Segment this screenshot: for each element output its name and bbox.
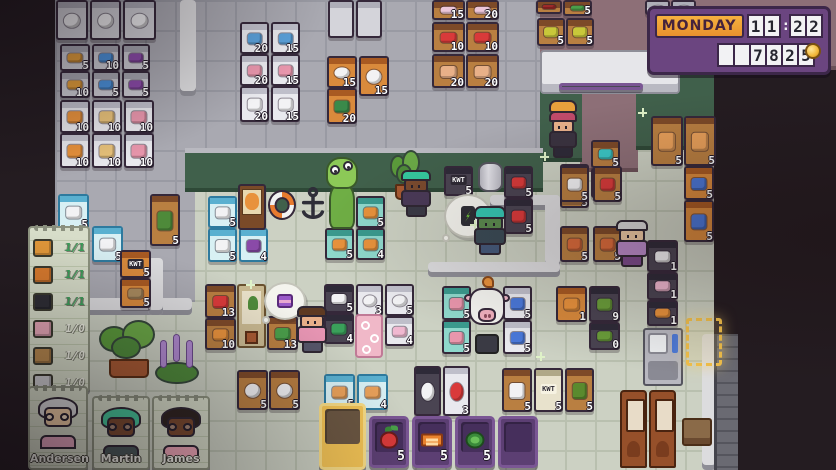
paper-shelf[interactable]: 5 bbox=[385, 284, 414, 316]
plant-stand-header bbox=[152, 196, 178, 202]
orange-shelf-paper[interactable]: 15 bbox=[327, 56, 357, 88]
shelf-redmeat-icon bbox=[543, 5, 556, 9]
lavender-plant-flower bbox=[186, 340, 193, 368]
greens-stand[interactable]: 0 bbox=[589, 322, 620, 350]
bandage-shelf-header bbox=[387, 318, 412, 324]
fish-shelf-stock-count: 4 bbox=[377, 248, 384, 261]
bun-stand[interactable]: 1 bbox=[647, 300, 678, 326]
steel-door-header bbox=[358, 2, 380, 8]
hotbar-slot-2[interactable]: 5 bbox=[369, 416, 409, 468]
fish-freezer[interactable]: 5 bbox=[208, 196, 237, 228]
bread-case-header bbox=[326, 376, 353, 382]
wall-shelf-burger-header bbox=[62, 46, 88, 52]
cake-stand[interactable]: 1 bbox=[647, 272, 678, 300]
thread-stand[interactable]: 5 bbox=[591, 140, 620, 168]
kwt-wall-shelf[interactable]: KWT5 bbox=[444, 166, 473, 196]
fish-shelf-icon bbox=[363, 207, 378, 218]
coffee-stand-icon bbox=[421, 383, 434, 401]
glasses-icon bbox=[60, 413, 69, 421]
entrance-doors[interactable] bbox=[620, 390, 676, 468]
produce-jars-header bbox=[568, 20, 592, 26]
james-portrait bbox=[159, 407, 203, 449]
kitchen-sink-basin bbox=[648, 333, 668, 354]
vending-oranges[interactable]: 10 bbox=[60, 100, 90, 133]
bun-stand-icon bbox=[655, 309, 671, 318]
egg-stand-icon bbox=[277, 384, 293, 398]
paper-shelf-header bbox=[358, 286, 381, 292]
fish-freezer-header bbox=[210, 230, 235, 236]
produce-pork-stock-count: 20 bbox=[451, 76, 464, 89]
fish-freezer-header bbox=[94, 228, 121, 234]
fridge-tower-header bbox=[686, 168, 712, 174]
orange-shelf-paper-header bbox=[361, 58, 387, 64]
time-display: 11:22 bbox=[749, 14, 823, 38]
staff-name: Martin bbox=[94, 452, 148, 465]
vending-bread-header bbox=[94, 135, 120, 141]
cola-fridge-header bbox=[506, 168, 531, 174]
pickle-stand-icon bbox=[572, 383, 587, 399]
kitchen-sink[interactable] bbox=[643, 328, 683, 386]
bread-stand-header bbox=[686, 118, 714, 124]
cola-fridge[interactable]: 5 bbox=[504, 198, 533, 234]
wall-shelf-jar-stock-count: 5 bbox=[112, 86, 119, 99]
wall-shelf-mushroom-icon bbox=[129, 80, 143, 89]
steel-door-header bbox=[330, 2, 352, 8]
fridge-water-header bbox=[273, 24, 298, 30]
wall-shelf-burger[interactable]: 5 bbox=[60, 44, 90, 71]
customer-bob[interactable] bbox=[297, 308, 327, 374]
pink-bottle-icon bbox=[33, 320, 53, 338]
portrait-shirt bbox=[40, 435, 76, 449]
bread-case-icon bbox=[365, 386, 381, 399]
fridge-milk-stock-count: 20 bbox=[255, 110, 268, 123]
yogurt-fridge-icon bbox=[510, 298, 525, 310]
life-buoy[interactable] bbox=[268, 190, 296, 220]
hud-money-row: 7825 bbox=[655, 43, 823, 67]
produce-jars[interactable]: 5 bbox=[537, 18, 565, 46]
list-item-bread-crate[interactable]: 1/1 bbox=[30, 234, 88, 261]
crate-candy-icon bbox=[600, 178, 615, 191]
staff-name: Andersen bbox=[30, 452, 86, 465]
sack-stand-icon bbox=[128, 288, 144, 298]
egg-stand-header bbox=[271, 372, 298, 378]
crate-bottles-header bbox=[562, 168, 587, 174]
paper-shelf[interactable]: 3 bbox=[356, 284, 383, 316]
fridge-water[interactable]: 15 bbox=[271, 22, 300, 54]
plant-sign-sprout bbox=[248, 296, 258, 310]
wall-shelf-jar[interactable]: 5 bbox=[92, 71, 120, 98]
produce-turnips[interactable]: 15 bbox=[432, 0, 465, 20]
med-shelf-icon bbox=[331, 324, 346, 335]
customer-zombie-beanie[interactable] bbox=[474, 206, 506, 282]
customer-grandma[interactable] bbox=[616, 222, 648, 288]
cow-mascot-body bbox=[475, 334, 499, 354]
produce-pork[interactable]: 20 bbox=[432, 54, 465, 88]
sack-stand[interactable]: 5 bbox=[120, 278, 151, 308]
crate-cans-header bbox=[562, 228, 587, 234]
wall-shelf-mushroom-header bbox=[124, 73, 148, 79]
energy-drink-progress: 1/1 bbox=[64, 295, 86, 308]
carrot-stand-stock-count: 10 bbox=[222, 338, 235, 351]
appliance[interactable] bbox=[123, 0, 156, 40]
soda-fridge-icon bbox=[450, 383, 463, 401]
fridge-meat-header bbox=[242, 56, 267, 62]
fish-freezer-header bbox=[60, 196, 87, 202]
egg-stand-stock-count: 5 bbox=[292, 398, 299, 411]
wall-shelf-burger-header bbox=[62, 73, 88, 79]
door-bench[interactable] bbox=[682, 418, 712, 446]
egg-stand[interactable]: 5 bbox=[237, 370, 268, 410]
hotbar-slot-4[interactable]: 5 bbox=[455, 416, 495, 468]
cow-mascot-head bbox=[469, 288, 505, 325]
juice-stand-icon bbox=[564, 298, 580, 311]
steel-door[interactable] bbox=[356, 0, 382, 38]
paper-shelf-header bbox=[387, 286, 412, 292]
vending-bread[interactable]: 10 bbox=[92, 133, 122, 168]
fish-shelf-icon bbox=[363, 239, 378, 250]
fish-freezer-header bbox=[210, 198, 235, 204]
juice-stand[interactable]: 1 bbox=[556, 286, 587, 322]
list-item-energy-drink[interactable]: 1/1 bbox=[30, 288, 88, 315]
vending-meat-header bbox=[126, 135, 152, 141]
produce-pork[interactable]: 20 bbox=[466, 54, 499, 88]
produce-cabbage[interactable]: 5 bbox=[563, 0, 592, 16]
greens-stand-header bbox=[591, 324, 618, 330]
greens-stand[interactable]: 9 bbox=[589, 286, 620, 322]
bread-stand[interactable]: 5 bbox=[684, 116, 716, 166]
kwt-wall-shelf-header bbox=[446, 168, 471, 174]
produce-jars[interactable]: 5 bbox=[566, 18, 594, 46]
orange-shelf-can[interactable]: 20 bbox=[327, 88, 357, 124]
glasses-icon bbox=[108, 423, 117, 431]
produce-cabbage-stock-count: 5 bbox=[584, 4, 591, 17]
fish-shelf-icon bbox=[332, 239, 347, 250]
plant-stand-icon bbox=[157, 211, 172, 230]
cabbage-item-icon bbox=[466, 431, 485, 448]
energy-drink-icon bbox=[33, 293, 53, 311]
yogurt-fridge-icon bbox=[510, 332, 525, 344]
fish-freezer[interactable]: 5 bbox=[92, 226, 123, 262]
lavender-plant[interactable] bbox=[150, 334, 204, 384]
list-item-nut-bundle[interactable]: 1/0 bbox=[30, 342, 88, 369]
fridge-meat[interactable]: 15 bbox=[271, 54, 300, 86]
staff-card-andersen[interactable]: Andersen bbox=[28, 386, 88, 470]
kwt-stand[interactable]: KWT5 bbox=[120, 250, 151, 278]
goods-icon bbox=[277, 294, 293, 308]
metal-keg[interactable] bbox=[478, 162, 503, 192]
fish-shelf[interactable]: 5 bbox=[325, 228, 354, 260]
fridge-tower[interactable]: 5 bbox=[684, 200, 714, 242]
appliance-header bbox=[125, 2, 154, 8]
carrot-stand-header bbox=[207, 320, 234, 326]
produce-jars-icon bbox=[544, 28, 558, 38]
fish-freezer[interactable]: 5 bbox=[208, 228, 237, 262]
greens-stand-header bbox=[591, 288, 618, 294]
vending-oranges[interactable]: 10 bbox=[60, 133, 90, 168]
orange-shelf-can-stock-count: 20 bbox=[343, 112, 356, 125]
cola-fridge-icon bbox=[511, 177, 526, 188]
meat-chunk-progress: 1/1 bbox=[64, 268, 86, 281]
pickle-stand[interactable]: 5 bbox=[565, 368, 594, 412]
hotbar-slot-5[interactable] bbox=[498, 416, 538, 468]
fridge-milk-header bbox=[242, 88, 267, 94]
leafy-plant-leaf bbox=[111, 336, 141, 359]
appliance[interactable] bbox=[90, 0, 121, 40]
sparkle-effect bbox=[246, 280, 255, 289]
fridge-milk-stock-count: 15 bbox=[286, 110, 299, 123]
fridge-meat[interactable]: 20 bbox=[240, 54, 269, 86]
fish-shelf[interactable]: 4 bbox=[356, 228, 385, 260]
bun-stand-header bbox=[649, 302, 676, 308]
produce-pork-header bbox=[434, 56, 463, 62]
coin-icon bbox=[805, 43, 821, 59]
staff-card-martin[interactable]: Martin bbox=[92, 396, 150, 470]
meat-fridge[interactable]: 5 bbox=[442, 286, 471, 320]
fridge-milk[interactable]: 20 bbox=[240, 86, 269, 122]
customer-zombie-beanie-legs bbox=[479, 243, 501, 255]
thread-stand-header bbox=[593, 142, 618, 148]
list-item-meat-chunk[interactable]: 1/1 bbox=[30, 261, 88, 288]
wall-shelf-mushroom[interactable]: 5 bbox=[122, 71, 150, 98]
vending-meat-stock-count: 10 bbox=[140, 156, 153, 169]
plant-stand[interactable]: 5 bbox=[150, 194, 180, 246]
list-item-pink-bottle[interactable]: 1/0 bbox=[30, 315, 88, 342]
bread-crate-icon bbox=[33, 239, 53, 257]
plant-sign-pot bbox=[245, 331, 258, 344]
money-display: 7825 bbox=[719, 43, 815, 67]
checkout-counter-slot bbox=[559, 83, 643, 90]
crate-candy-header bbox=[595, 168, 620, 174]
fish-statue[interactable] bbox=[323, 156, 361, 230]
appliance-header bbox=[58, 2, 86, 8]
produce-jars-icon bbox=[573, 28, 587, 38]
pink-bottle-progress: 1/0 bbox=[64, 322, 86, 335]
appliance-icon bbox=[98, 14, 114, 28]
mushroom-freezer[interactable]: 4 bbox=[239, 228, 268, 262]
shopping-list-panel: 1/11/11/11/01/01/0 bbox=[28, 226, 90, 392]
hotbar-slot-1[interactable] bbox=[319, 403, 366, 470]
cake-stand-icon bbox=[655, 282, 671, 292]
produce-jars-header bbox=[539, 20, 563, 26]
meat-fridge-header bbox=[444, 322, 469, 328]
produce-pork-header bbox=[468, 56, 497, 62]
wall-shelf-burger-icon bbox=[67, 53, 82, 62]
yogurt-fridge[interactable]: 5 bbox=[503, 286, 532, 320]
bandage-shelf-stock-count: 4 bbox=[406, 334, 413, 347]
plant-stand-stock-count: 5 bbox=[172, 234, 179, 247]
crate-cans[interactable]: 5 bbox=[560, 226, 589, 262]
fridge-tower-stock-count: 5 bbox=[706, 230, 713, 243]
greens-stand-icon bbox=[597, 298, 613, 311]
nut-bundle-icon bbox=[33, 347, 53, 365]
steel-door[interactable] bbox=[328, 0, 354, 38]
bread-stand[interactable]: 5 bbox=[651, 116, 683, 166]
egg-stand[interactable]: 5 bbox=[269, 370, 300, 410]
day-label: MONDAY bbox=[655, 14, 744, 38]
cabbage-stand[interactable]: 13 bbox=[267, 316, 298, 350]
produce-apples[interactable]: 10 bbox=[432, 22, 465, 52]
wall-shelf-jar-icon bbox=[99, 80, 113, 89]
greens-stand-stock-count: 0 bbox=[612, 338, 619, 351]
cabbage-stand-stock-count: 13 bbox=[284, 338, 297, 351]
hotbar-slot-inner bbox=[325, 409, 360, 444]
yogurt-fridge[interactable]: 5 bbox=[503, 320, 532, 354]
nut-bundle-progress: 1/0 bbox=[64, 349, 86, 362]
meat-fridge[interactable]: 5 bbox=[442, 320, 471, 354]
vending-bread[interactable]: 10 bbox=[92, 100, 122, 133]
crate-cans-icon bbox=[600, 238, 615, 251]
game-screen: 5101055510101010101020202015151515201515… bbox=[0, 0, 836, 470]
bun-stand-stock-count: 1 bbox=[670, 314, 677, 327]
bread-case-icon bbox=[332, 386, 348, 399]
juice-stand-header bbox=[558, 288, 585, 294]
kitchen-sink-cabinet bbox=[648, 361, 678, 379]
wall-shelf-burger[interactable]: 10 bbox=[60, 71, 90, 98]
wall-shelf-mushroom[interactable]: 5 bbox=[122, 44, 150, 71]
wall-shelf-jar-header bbox=[94, 73, 118, 79]
pickle-stand-header bbox=[567, 370, 592, 376]
bag-stand-icon bbox=[509, 383, 524, 399]
produce-turnips[interactable]: 20 bbox=[466, 0, 499, 20]
cow-mascot[interactable] bbox=[468, 282, 506, 354]
wall-shelf-mushroom-icon bbox=[129, 53, 143, 62]
construction-worker-legs bbox=[553, 146, 573, 158]
vending-meat[interactable]: 10 bbox=[124, 100, 154, 133]
kwt-news-stand-header bbox=[536, 370, 561, 376]
ticket-item-icon bbox=[421, 433, 443, 446]
fish-statue-eye bbox=[343, 161, 353, 171]
customer-grandma-face bbox=[619, 229, 645, 242]
customer-bob-face bbox=[300, 315, 325, 328]
hotbar-item-count: 5 bbox=[440, 449, 448, 464]
skull-portrait[interactable] bbox=[238, 184, 266, 230]
crate-bottles-icon bbox=[567, 178, 582, 191]
skull-portrait-skull bbox=[245, 193, 258, 210]
appliance-icon bbox=[64, 14, 80, 28]
bread-stand-stock-count: 5 bbox=[675, 154, 682, 167]
crate-bottles[interactable]: 5 bbox=[560, 166, 589, 202]
kwt-news-stand-sign-label: KWT bbox=[540, 384, 557, 394]
med-shelf-stock-count: 4 bbox=[346, 332, 353, 345]
produce-turnips-stock-count: 15 bbox=[451, 8, 464, 21]
tomato-stand-header bbox=[207, 286, 234, 292]
orange-shelf-paper-icon bbox=[366, 70, 381, 84]
bread-stand-header bbox=[653, 118, 681, 124]
wall-shelf-jar[interactable]: 10 bbox=[92, 44, 120, 71]
flower-shelf-header bbox=[326, 286, 352, 292]
hotbar-slot-3[interactable]: 5 bbox=[412, 416, 452, 468]
cola-fridge[interactable]: 5 bbox=[504, 166, 533, 198]
sack-stand-header bbox=[122, 280, 149, 286]
yogurt-fridge-header bbox=[505, 322, 530, 328]
vending-bread-stock-count: 10 bbox=[108, 156, 121, 169]
plant-sign[interactable] bbox=[237, 284, 266, 348]
wall-shelf-mushroom-header bbox=[124, 46, 148, 52]
cake-stand-header bbox=[649, 274, 676, 280]
soda-fridge-header bbox=[445, 368, 468, 374]
glasses-icon bbox=[183, 423, 192, 431]
med-shelf-header bbox=[326, 315, 352, 321]
staff-card-james[interactable]: James bbox=[152, 396, 210, 470]
customer-teal-hair-legs bbox=[406, 205, 427, 217]
construction-worker[interactable] bbox=[549, 100, 577, 162]
milk-stand-icon bbox=[655, 251, 671, 262]
bandage-shelf[interactable]: 4 bbox=[385, 316, 414, 346]
entrance-doors-left[interactable] bbox=[620, 390, 647, 468]
vending-meat[interactable]: 10 bbox=[124, 133, 154, 168]
produce-pork-stock-count: 20 bbox=[485, 76, 498, 89]
flower-shelf-icon bbox=[331, 294, 346, 304]
mushroom-freezer-header bbox=[241, 230, 266, 236]
produce-apples-stock-count: 10 bbox=[485, 40, 498, 53]
flower-shelf[interactable]: 5 bbox=[324, 284, 354, 313]
yogurt-fridge-stock-count: 5 bbox=[524, 342, 531, 355]
thought-bubble-energy-drink-tail bbox=[442, 234, 450, 242]
fridge-milk[interactable]: 15 bbox=[271, 86, 300, 122]
customer-teal-hair[interactable] bbox=[401, 172, 431, 242]
wall-shelf-mushroom-stock-count: 5 bbox=[142, 86, 149, 99]
milk-stand-header bbox=[649, 242, 676, 248]
orange-shelf-paper[interactable]: 15 bbox=[359, 56, 389, 96]
vending-oranges-header bbox=[62, 102, 88, 108]
egg-stand-stock-count: 5 bbox=[260, 398, 267, 411]
fridge-tower-icon bbox=[691, 214, 706, 229]
fish-shelf-header bbox=[358, 230, 383, 236]
time-digit: 2 bbox=[805, 14, 823, 38]
egg-stand-icon bbox=[245, 384, 261, 398]
mushroom-freezer-stock-count: 4 bbox=[260, 250, 267, 263]
fridge-water-header bbox=[242, 24, 267, 30]
hotbar-slot-inner bbox=[504, 422, 532, 452]
thread-stand-icon bbox=[598, 150, 613, 160]
hud-panel: MONDAY 11:22 7825 bbox=[647, 6, 831, 75]
carrot-stand[interactable]: 10 bbox=[205, 318, 236, 350]
vending-oranges-stock-count: 10 bbox=[76, 156, 89, 169]
tomato-stand[interactable]: 13 bbox=[205, 284, 236, 318]
fish-shelf-header bbox=[327, 230, 352, 236]
entrance-doors-right[interactable] bbox=[649, 390, 676, 468]
med-shelf[interactable]: 4 bbox=[324, 313, 354, 344]
customer-bob-legs bbox=[302, 341, 323, 353]
yogurt-fridge-header bbox=[505, 288, 530, 294]
thought-bubble-goods-tail bbox=[262, 316, 270, 324]
time-digit: 1 bbox=[763, 14, 781, 38]
lavender-plant-flower bbox=[160, 340, 167, 368]
hotbar: 555 bbox=[316, 403, 538, 470]
kwt-news-stand[interactable]: KWT5 bbox=[534, 368, 563, 412]
crate-candy[interactable]: 5 bbox=[593, 166, 622, 202]
bag-stand-header bbox=[504, 370, 530, 376]
greens-stand-icon bbox=[597, 332, 613, 342]
customer-grandma-legs bbox=[621, 255, 643, 267]
placement-highlight[interactable] bbox=[686, 318, 722, 366]
fish-shelf-stock-count: 5 bbox=[346, 248, 353, 261]
appliance[interactable] bbox=[56, 0, 88, 40]
milk-stand[interactable]: 1 bbox=[647, 240, 678, 272]
fridge-water[interactable]: 20 bbox=[240, 22, 269, 54]
produce-apples[interactable]: 10 bbox=[466, 22, 499, 52]
hotbar-item-count: 5 bbox=[397, 449, 405, 464]
shelf-redmeat[interactable] bbox=[536, 0, 562, 14]
cola-fridge-icon bbox=[511, 210, 526, 223]
wall-shelf-jar-header bbox=[94, 46, 118, 52]
fish-statue-body bbox=[329, 184, 355, 228]
fridge-tower[interactable]: 5 bbox=[684, 166, 714, 200]
glasses-icon bbox=[45, 413, 54, 421]
pink-counter[interactable] bbox=[355, 314, 383, 358]
sparkle-effect bbox=[540, 152, 549, 161]
hotbar-item-count: 5 bbox=[483, 449, 491, 464]
